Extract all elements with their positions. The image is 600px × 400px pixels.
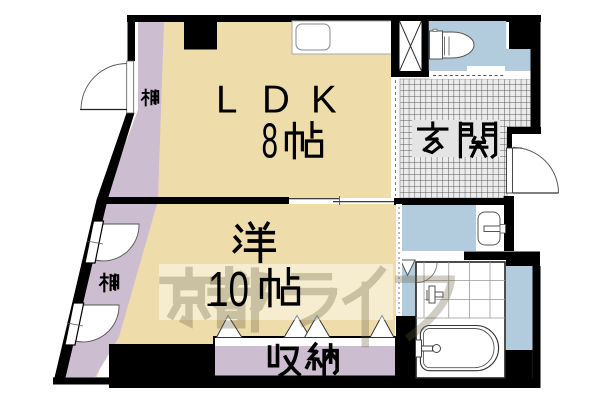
- svg-text:10: 10: [208, 263, 249, 317]
- svg-text:K: K: [311, 79, 337, 122]
- svg-text:L: L: [216, 79, 237, 122]
- svg-text:8: 8: [262, 115, 279, 169]
